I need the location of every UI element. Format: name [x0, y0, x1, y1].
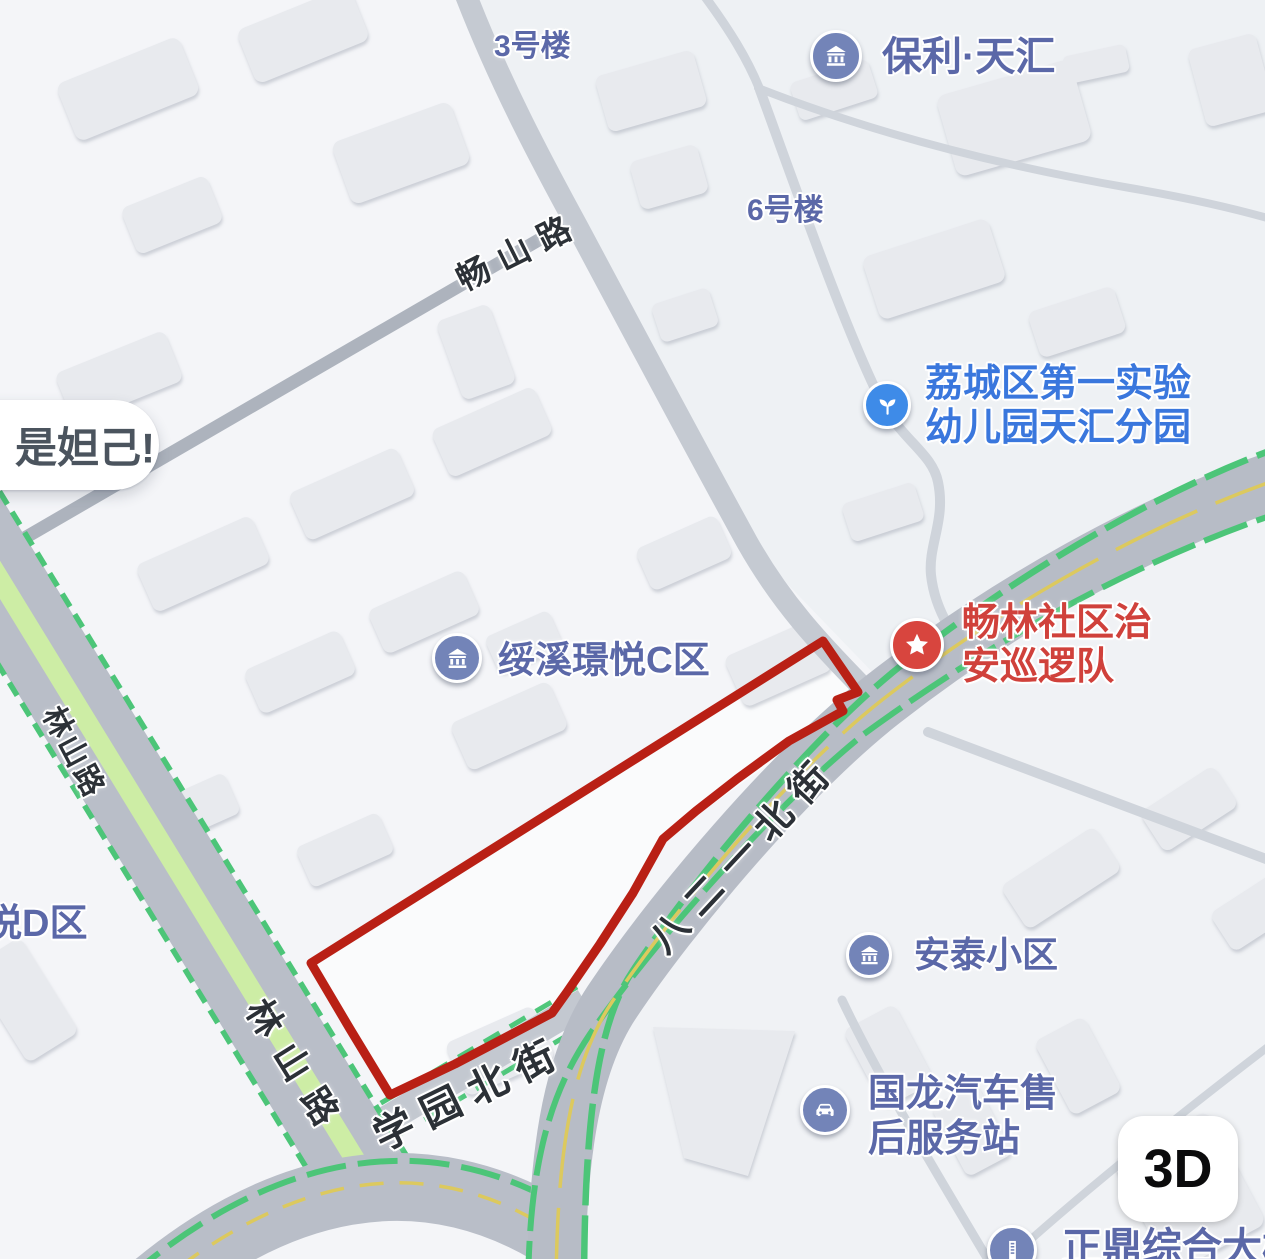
car-icon[interactable] — [800, 1085, 850, 1135]
poi-label-patrol-line2[interactable]: 安巡逻队 — [962, 648, 1114, 686]
poi-label-guolong-line1[interactable]: 国龙汽车售 — [868, 1075, 1058, 1113]
poi-label-kindergarten-line1[interactable]: 荔城区第一实验 — [925, 365, 1191, 403]
poi-label-guolong-line2[interactable]: 后服务站 — [868, 1120, 1020, 1158]
poi-label-patrol-line1[interactable]: 畅林社区治 — [962, 604, 1152, 642]
poi-label-antai-xiaoqu[interactable]: 安泰小区 — [914, 937, 1058, 973]
poi-label-baoli-tianhui[interactable]: 保利·天汇 — [882, 37, 1055, 77]
house-icon[interactable] — [846, 932, 892, 978]
house-icon[interactable] — [810, 30, 862, 82]
poi-label-kindergarten-line2[interactable]: 幼儿园天汇分园 — [925, 409, 1191, 447]
star-icon[interactable] — [890, 618, 944, 672]
sprout-icon[interactable] — [863, 381, 911, 429]
map-canvas[interactable]: 畅山路 林山路 林山路 八二一北街 学园北街 3号楼 6号楼 悦D区 保利·天汇… — [0, 0, 1265, 1259]
chat-bubble-text: 是妲己! — [15, 415, 155, 476]
block-label-yue-d-qu: 悦D区 — [0, 905, 87, 943]
road-bottom-curve — [128, 1161, 572, 1259]
house-icon[interactable] — [432, 633, 482, 683]
view-3d-toggle-button[interactable]: 3D — [1118, 1116, 1238, 1222]
block-label-3haolou: 3号楼 — [494, 32, 571, 62]
chat-bubble-callout[interactable]: 是妲己! — [0, 400, 159, 490]
poi-label-suixi-jingyue-c[interactable]: 绥溪璟悦C区 — [498, 642, 710, 679]
block-label-6haolou: 6号楼 — [747, 196, 824, 226]
poi-label-zhengding[interactable]: 正鼎综合大楼 — [1062, 1228, 1265, 1259]
